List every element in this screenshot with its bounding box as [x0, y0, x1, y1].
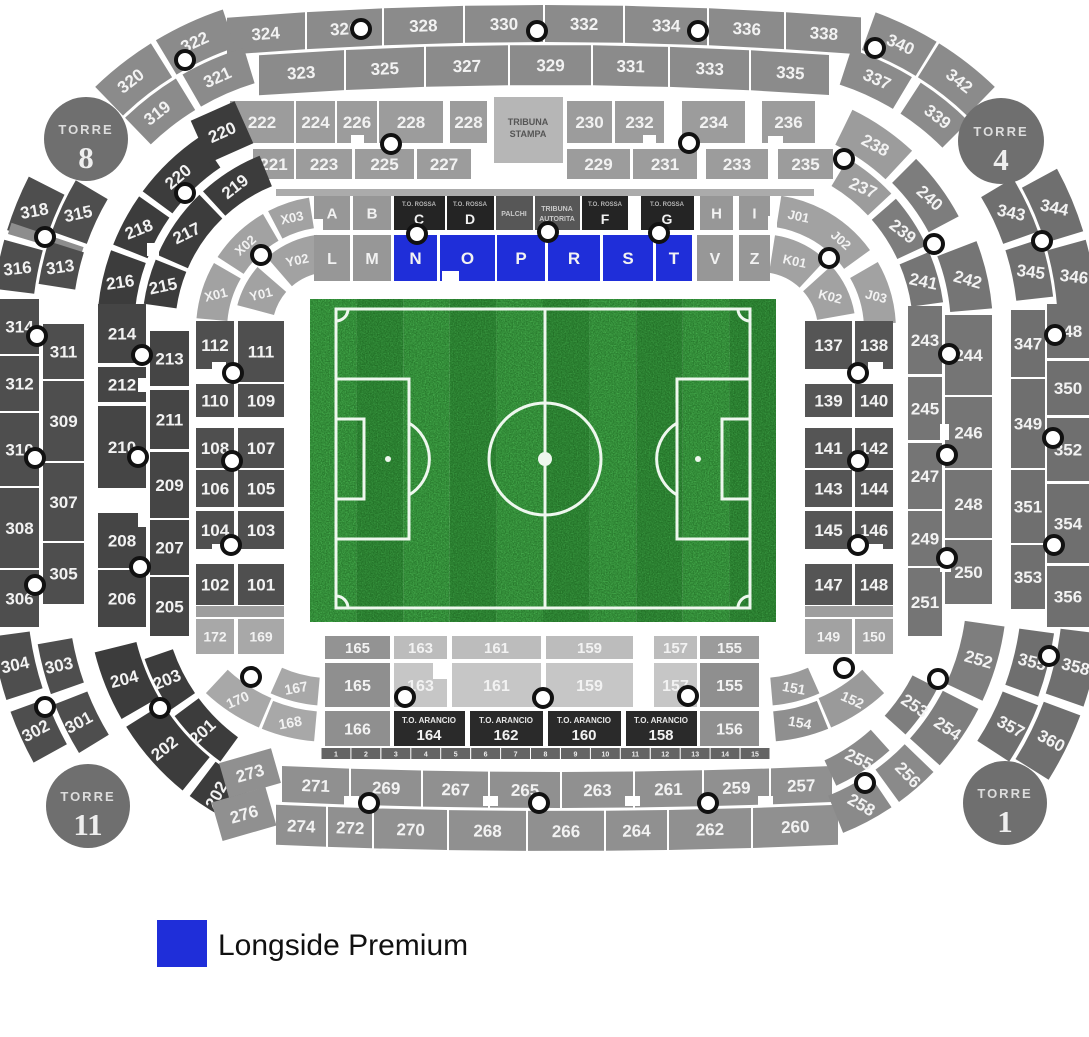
- svg-text:5: 5: [454, 752, 458, 759]
- svg-text:4: 4: [424, 752, 428, 759]
- svg-text:S: S: [622, 249, 633, 268]
- svg-text:336: 336: [732, 19, 761, 39]
- svg-text:165: 165: [344, 678, 371, 695]
- svg-text:349: 349: [1014, 415, 1042, 434]
- svg-text:228: 228: [454, 113, 482, 132]
- svg-text:165: 165: [345, 640, 370, 657]
- svg-text:234: 234: [699, 113, 728, 132]
- svg-text:2: 2: [364, 752, 368, 759]
- svg-text:T.O. ROSSA: T.O. ROSSA: [402, 202, 437, 208]
- svg-text:159: 159: [576, 678, 603, 695]
- svg-text:172: 172: [203, 629, 227, 645]
- svg-text:149: 149: [817, 629, 841, 645]
- svg-text:I: I: [752, 205, 756, 222]
- svg-text:111: 111: [248, 343, 275, 362]
- svg-text:332: 332: [570, 15, 599, 34]
- svg-text:159: 159: [577, 640, 602, 657]
- svg-text:305: 305: [49, 565, 77, 584]
- svg-text:4: 4: [993, 142, 1009, 177]
- svg-text:162: 162: [493, 727, 518, 744]
- svg-text:274: 274: [287, 816, 317, 836]
- svg-text:335: 335: [776, 63, 805, 84]
- svg-text:N: N: [409, 249, 421, 268]
- svg-text:260: 260: [781, 817, 810, 837]
- svg-text:T.O. ROSSA: T.O. ROSSA: [588, 202, 623, 208]
- svg-text:103: 103: [247, 521, 275, 540]
- svg-text:323: 323: [286, 63, 315, 84]
- svg-text:268: 268: [473, 822, 502, 841]
- svg-text:R: R: [568, 249, 580, 268]
- svg-text:229: 229: [584, 155, 612, 174]
- svg-text:211: 211: [156, 411, 183, 430]
- svg-text:222: 222: [248, 113, 276, 132]
- svg-text:7: 7: [514, 752, 518, 759]
- svg-text:227: 227: [430, 155, 458, 174]
- svg-text:338: 338: [809, 23, 839, 44]
- svg-text:T.O. ARANCIO: T.O. ARANCIO: [479, 716, 533, 725]
- svg-text:141: 141: [814, 439, 842, 458]
- svg-text:T.O. ROSSA: T.O. ROSSA: [650, 202, 685, 208]
- svg-text:11: 11: [632, 752, 640, 759]
- svg-text:311: 311: [50, 343, 77, 362]
- svg-text:TRIBUNA: TRIBUNA: [541, 206, 573, 213]
- svg-text:A: A: [327, 205, 338, 222]
- svg-text:329: 329: [536, 56, 564, 75]
- svg-text:267: 267: [441, 780, 470, 799]
- svg-text:245: 245: [911, 400, 939, 419]
- svg-text:140: 140: [860, 392, 888, 411]
- svg-text:110: 110: [201, 392, 228, 411]
- svg-text:102: 102: [201, 576, 229, 595]
- svg-text:8: 8: [78, 140, 94, 175]
- svg-text:144: 144: [860, 480, 889, 499]
- svg-text:D: D: [465, 211, 475, 227]
- svg-text:V: V: [710, 251, 721, 268]
- svg-text:353: 353: [1014, 568, 1042, 587]
- svg-text:T.O. ROSSA: T.O. ROSSA: [453, 202, 488, 208]
- svg-text:207: 207: [155, 539, 183, 558]
- svg-text:Z: Z: [750, 251, 760, 268]
- svg-text:166: 166: [344, 721, 371, 738]
- svg-text:TORRE: TORRE: [58, 122, 113, 137]
- svg-text:STAMPA: STAMPA: [510, 129, 547, 139]
- svg-text:147: 147: [814, 576, 842, 595]
- svg-text:O: O: [461, 249, 474, 268]
- svg-text:263: 263: [583, 781, 612, 800]
- svg-text:156: 156: [716, 721, 743, 738]
- svg-text:209: 209: [155, 476, 183, 495]
- svg-text:145: 145: [814, 521, 842, 540]
- svg-text:327: 327: [453, 57, 482, 77]
- svg-text:214: 214: [108, 325, 137, 344]
- svg-text:101: 101: [247, 576, 275, 595]
- svg-text:347: 347: [1014, 335, 1042, 354]
- svg-text:14: 14: [721, 752, 729, 759]
- svg-text:262: 262: [695, 820, 724, 840]
- svg-text:312: 312: [5, 375, 33, 394]
- svg-text:9: 9: [573, 752, 577, 759]
- svg-text:264: 264: [622, 821, 651, 840]
- svg-text:354: 354: [1054, 515, 1083, 534]
- svg-text:230: 230: [575, 113, 603, 132]
- svg-text:248: 248: [954, 495, 982, 514]
- svg-text:163: 163: [408, 640, 433, 657]
- svg-text:356: 356: [1054, 588, 1082, 607]
- svg-text:TORRE: TORRE: [973, 124, 1028, 139]
- svg-text:12: 12: [661, 752, 669, 759]
- svg-text:11: 11: [73, 807, 102, 842]
- svg-text:246: 246: [954, 424, 982, 443]
- svg-text:334: 334: [652, 16, 681, 36]
- svg-text:13: 13: [691, 752, 699, 759]
- svg-text:307: 307: [49, 493, 77, 512]
- svg-text:T.O. ARANCIO: T.O. ARANCIO: [634, 716, 688, 725]
- svg-text:330: 330: [490, 15, 519, 34]
- svg-text:TORRE: TORRE: [977, 786, 1032, 801]
- svg-text:261: 261: [654, 780, 683, 799]
- svg-text:169: 169: [249, 629, 273, 645]
- svg-text:316: 316: [2, 258, 32, 280]
- svg-text:F: F: [601, 211, 610, 227]
- svg-text:109: 109: [247, 392, 275, 411]
- svg-text:270: 270: [396, 820, 425, 840]
- svg-text:213: 213: [155, 350, 183, 369]
- svg-text:206: 206: [108, 590, 136, 609]
- svg-text:228: 228: [397, 113, 425, 132]
- svg-text:PALCHI: PALCHI: [501, 211, 527, 218]
- svg-text:157: 157: [663, 640, 688, 657]
- svg-text:328: 328: [409, 16, 438, 36]
- svg-text:205: 205: [155, 598, 183, 617]
- svg-text:223: 223: [310, 155, 338, 174]
- svg-text:226: 226: [343, 113, 371, 132]
- svg-text:1: 1: [334, 752, 338, 759]
- svg-text:161: 161: [483, 678, 510, 695]
- svg-text:351: 351: [1014, 498, 1042, 517]
- svg-text:324: 324: [251, 23, 281, 44]
- svg-text:6: 6: [484, 752, 488, 759]
- svg-text:T: T: [669, 249, 680, 268]
- svg-text:143: 143: [814, 480, 842, 499]
- svg-text:212: 212: [108, 376, 136, 395]
- svg-text:H: H: [711, 205, 722, 222]
- svg-text:325: 325: [370, 59, 399, 79]
- svg-text:10: 10: [602, 752, 610, 759]
- svg-text:208: 208: [108, 532, 136, 551]
- svg-text:236: 236: [774, 113, 802, 132]
- svg-text:259: 259: [722, 778, 751, 798]
- svg-text:350: 350: [1054, 379, 1082, 398]
- svg-text:271: 271: [301, 776, 330, 796]
- svg-text:266: 266: [552, 822, 580, 841]
- svg-text:249: 249: [911, 530, 939, 549]
- svg-text:107: 107: [247, 439, 275, 458]
- svg-text:P: P: [515, 249, 526, 268]
- svg-text:B: B: [367, 205, 378, 222]
- svg-text:150: 150: [862, 629, 886, 645]
- svg-text:Longside Premium: Longside Premium: [218, 929, 468, 962]
- svg-text:1: 1: [997, 804, 1013, 839]
- svg-text:138: 138: [860, 336, 888, 355]
- svg-text:251: 251: [911, 593, 939, 612]
- svg-text:233: 233: [723, 155, 751, 174]
- svg-text:232: 232: [625, 113, 653, 132]
- svg-text:161: 161: [484, 640, 509, 657]
- svg-text:137: 137: [814, 336, 842, 355]
- svg-text:225: 225: [370, 155, 398, 174]
- svg-text:139: 139: [814, 392, 842, 411]
- svg-text:272: 272: [336, 818, 365, 838]
- svg-text:224: 224: [301, 113, 330, 132]
- svg-text:313: 313: [45, 256, 76, 279]
- svg-text:164: 164: [416, 727, 442, 744]
- svg-text:333: 333: [695, 59, 724, 79]
- svg-text:106: 106: [201, 480, 229, 499]
- svg-text:308: 308: [5, 519, 33, 538]
- svg-text:T.O. ARANCIO: T.O. ARANCIO: [402, 716, 456, 725]
- svg-text:231: 231: [651, 155, 679, 174]
- svg-text:L: L: [327, 251, 337, 268]
- svg-text:TORRE: TORRE: [60, 789, 115, 804]
- svg-text:243: 243: [911, 331, 939, 350]
- svg-text:3: 3: [394, 752, 398, 759]
- svg-text:155: 155: [716, 678, 743, 695]
- svg-text:T.O. ARANCIO: T.O. ARANCIO: [557, 716, 611, 725]
- svg-text:160: 160: [571, 727, 596, 744]
- svg-text:112: 112: [201, 336, 228, 355]
- svg-text:M: M: [365, 251, 378, 268]
- svg-text:158: 158: [648, 727, 673, 744]
- svg-text:345: 345: [1016, 261, 1046, 283]
- svg-text:235: 235: [791, 155, 819, 174]
- svg-text:309: 309: [49, 412, 77, 431]
- svg-text:105: 105: [247, 480, 275, 499]
- svg-text:8: 8: [544, 752, 548, 759]
- svg-text:15: 15: [751, 752, 759, 759]
- svg-text:331: 331: [616, 57, 645, 77]
- svg-text:155: 155: [717, 640, 742, 657]
- svg-text:TRIBUNA: TRIBUNA: [508, 117, 549, 127]
- svg-text:247: 247: [911, 467, 939, 486]
- svg-text:216: 216: [105, 271, 136, 294]
- svg-text:148: 148: [860, 576, 888, 595]
- svg-text:250: 250: [954, 563, 982, 582]
- svg-text:257: 257: [787, 776, 816, 796]
- svg-text:346: 346: [1059, 266, 1089, 288]
